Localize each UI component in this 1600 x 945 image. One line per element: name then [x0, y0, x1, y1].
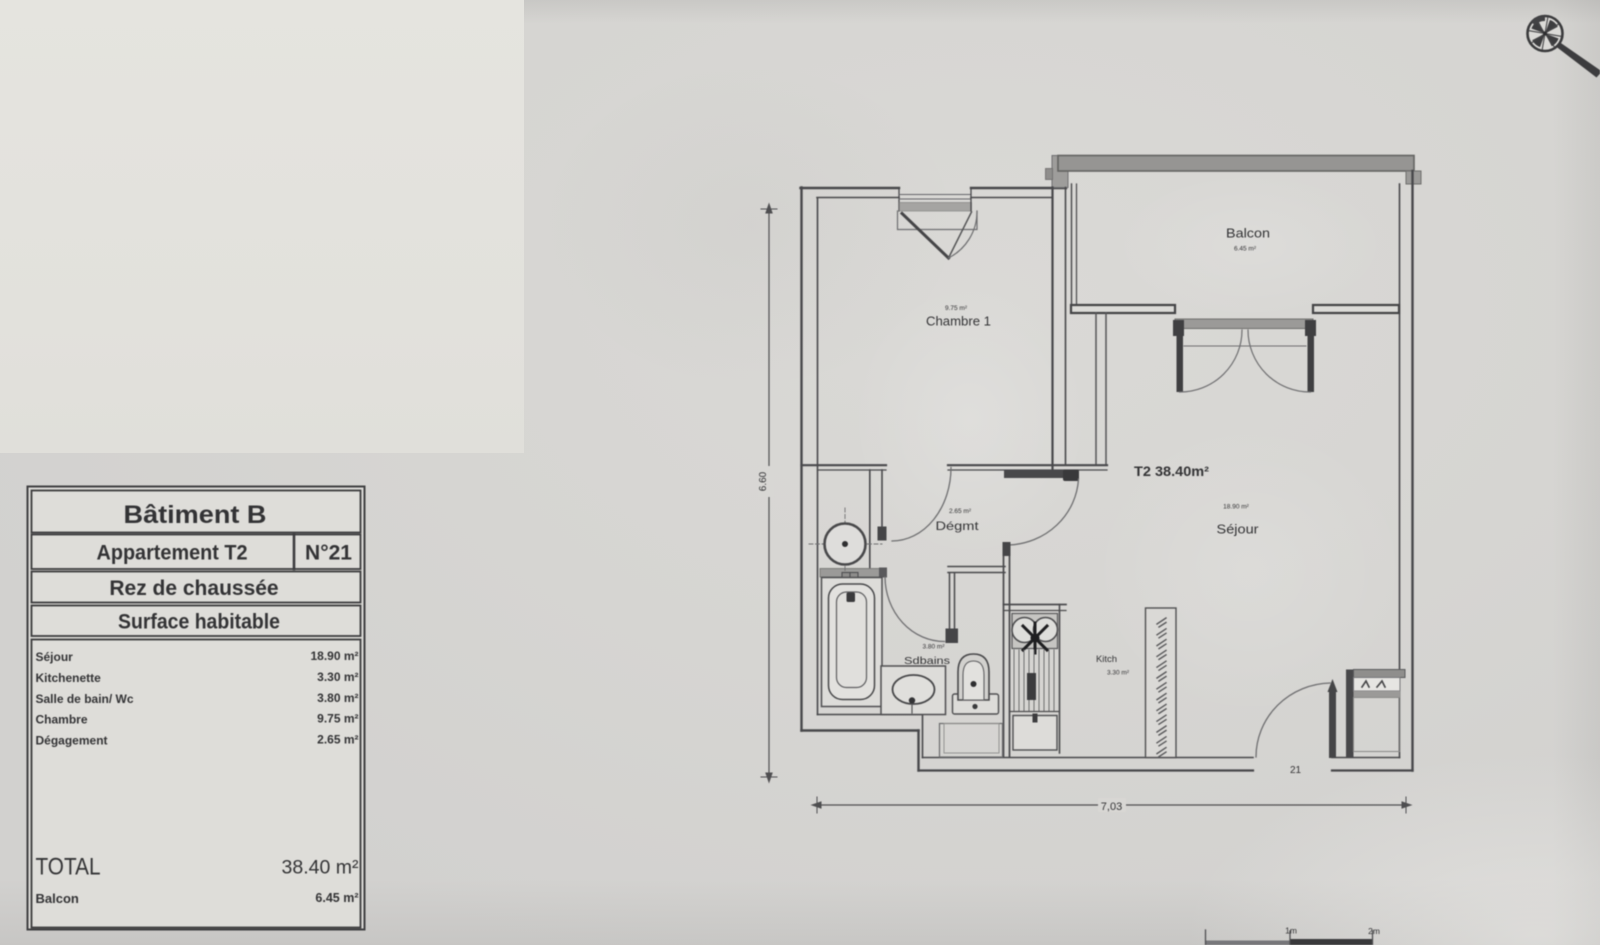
svg-text:9.75 m²: 9.75 m² [945, 305, 968, 312]
svg-text:N°21: N°21 [305, 542, 352, 565]
svg-text:6.45 m²: 6.45 m² [1234, 246, 1257, 253]
svg-text:Rez de chaussée: Rez de chaussée [109, 577, 278, 600]
svg-text:6.60: 6.60 [758, 471, 769, 491]
svg-text:3.80 m²: 3.80 m² [317, 691, 358, 705]
svg-text:Chambre 1: Chambre 1 [926, 315, 991, 329]
svg-text:Séjour: Séjour [1217, 523, 1259, 537]
svg-text:1m: 1m [1285, 926, 1297, 936]
svg-text:Chambre: Chambre [36, 713, 88, 727]
svg-text:Balcon: Balcon [36, 891, 79, 906]
svg-text:21: 21 [1290, 765, 1302, 776]
svg-text:7,03: 7,03 [1101, 801, 1122, 813]
svg-text:T2 38.40m²: T2 38.40m² [1134, 464, 1210, 479]
svg-text:3.30 m²: 3.30 m² [1107, 670, 1130, 677]
svg-text:Séjour: Séjour [36, 650, 74, 664]
svg-text:2m: 2m [1368, 926, 1380, 936]
svg-text:18.90 m²: 18.90 m² [1223, 504, 1249, 511]
svg-text:Balcon: Balcon [1226, 227, 1270, 241]
svg-text:Bâtiment B: Bâtiment B [124, 501, 267, 529]
svg-text:Kitchenette: Kitchenette [36, 671, 102, 685]
svg-text:Dégagement: Dégagement [36, 734, 108, 748]
svg-text:2.65 m²: 2.65 m² [317, 733, 358, 747]
svg-text:Surface habitable: Surface habitable [118, 611, 280, 634]
svg-text:Dégmt: Dégmt [936, 519, 980, 533]
svg-text:Salle de bain/ Wc: Salle de bain/ Wc [36, 692, 134, 706]
svg-text:TOTAL: TOTAL [36, 854, 101, 881]
svg-text:6.45 m²: 6.45 m² [315, 891, 358, 905]
svg-text:18.90 m²: 18.90 m² [310, 649, 358, 663]
svg-text:3.80 m²: 3.80 m² [922, 644, 945, 651]
svg-text:2.65 m²: 2.65 m² [949, 508, 972, 515]
svg-text:9.75 m²: 9.75 m² [317, 712, 358, 726]
svg-text:38.40 m²: 38.40 m² [282, 857, 359, 879]
svg-text:3.30 m²: 3.30 m² [317, 670, 358, 684]
svg-text:Appartement T2: Appartement T2 [97, 542, 248, 565]
svg-text:Kitch: Kitch [1096, 654, 1117, 665]
svg-text:Sdbains: Sdbains [904, 655, 950, 667]
